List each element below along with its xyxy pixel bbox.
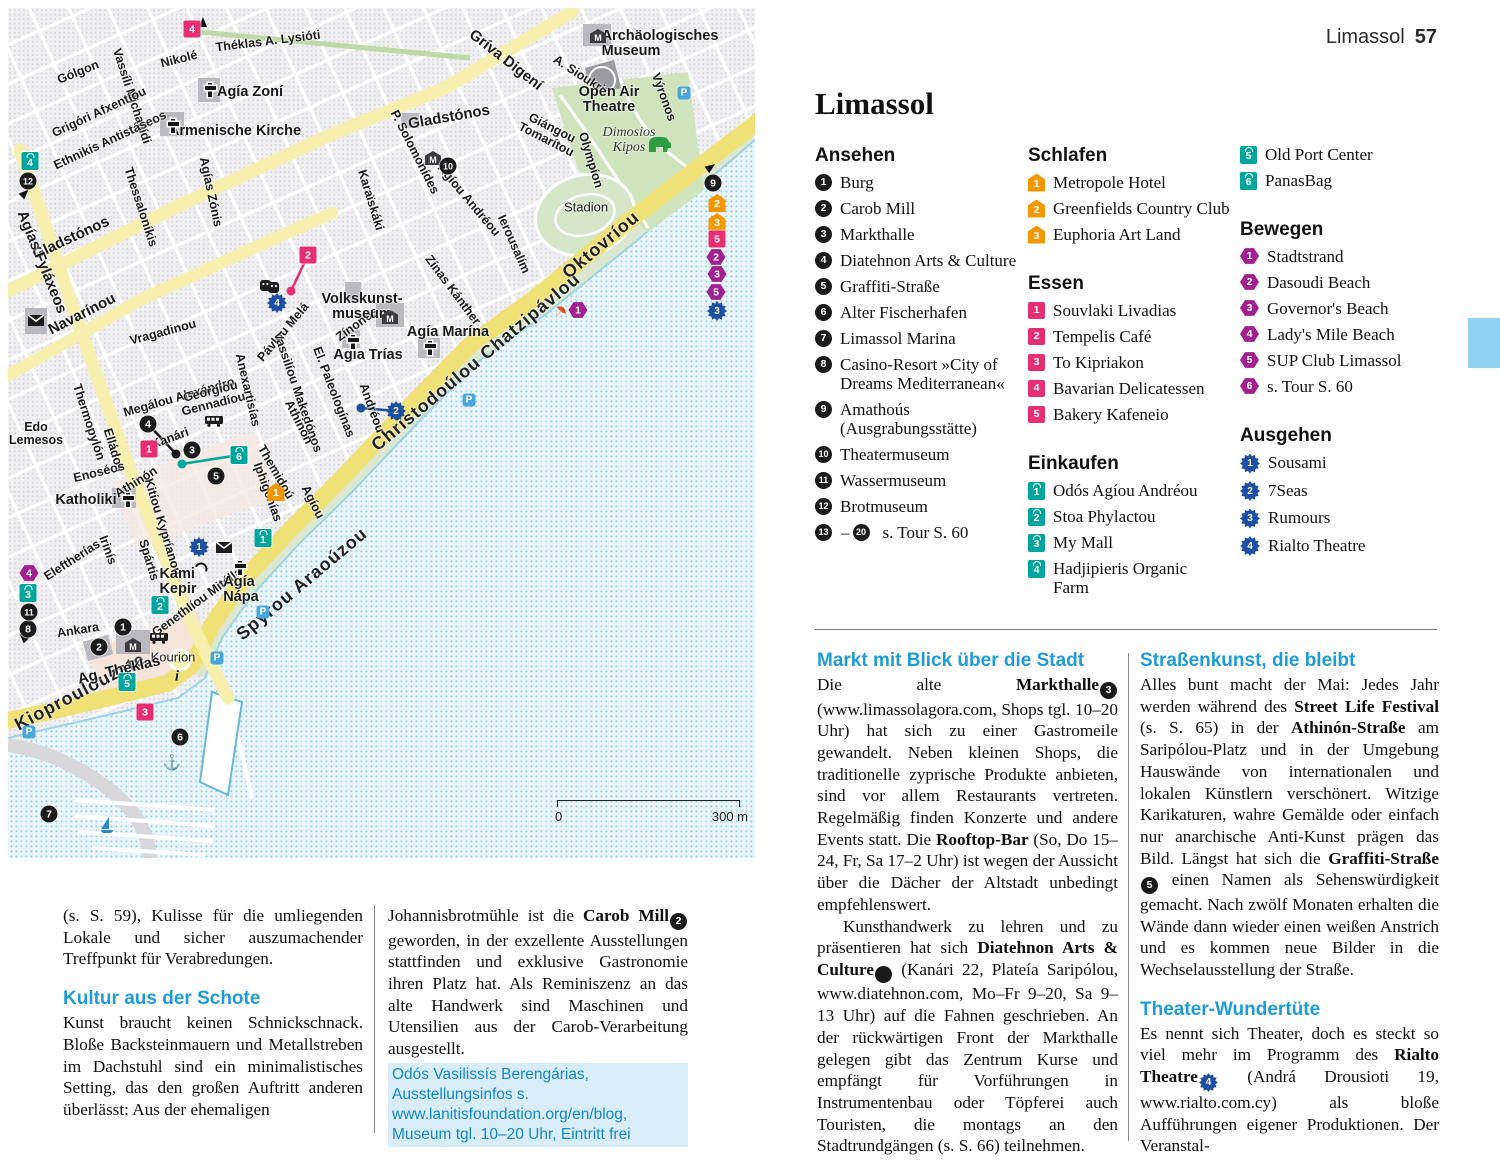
page-title: Limassol [815,86,934,122]
directory-item: 5Bakery Kafeneio [1028,405,1240,424]
directory-item: 4Hadjipieris Organic Farm [1028,559,1240,597]
sight-marker-8: 8 [815,356,832,373]
directory-item: 2Stoa Phylactou [1028,507,1240,526]
article-heading: Theater-Wundertüte [1140,999,1439,1021]
shop-marker-1: 1 [1028,482,1045,500]
shop-marker-6: 6 [1240,172,1257,190]
section-heading-ansehen: Ansehen [815,145,1028,167]
food-marker-1: 1 [1028,302,1045,319]
directory-item: 2Carob Mill [815,199,1028,218]
sight-marker-13: 13 [815,524,832,541]
bold-keyword: Graffiti-Straße [1328,849,1439,868]
map-scale-bar: 0 300 m [557,800,740,807]
sight-marker-9: 9 [815,401,832,418]
scale-end-label: 300 m [712,809,748,824]
sight-marker-4: 4 [815,252,832,269]
directory-item: 13–20s. Tour S. 60 [815,523,1028,542]
directory-item: 3Rumours [1240,508,1437,529]
directory-item-label: Stoa Phylactou [1053,507,1155,526]
food-marker-3: 3 [1028,354,1045,371]
sight-marker-2: 2 [815,200,832,217]
directory-item: 6s. Tour S. 60 [1240,377,1437,396]
section-heading-ausgehen: Ausgehen [1240,425,1437,447]
directory-item-label: To Kipriakon [1053,353,1144,372]
page-header: Limassol57 [1326,26,1437,49]
sight-marker-3: 3 [1100,682,1117,699]
night-marker-2: 2 [1240,481,1260,501]
directory-item: 2Tempelis Café [1028,327,1240,346]
bold-keyword: Athinón-Straße [1291,718,1406,737]
sight-marker-2: 2 [670,913,687,930]
page-edge-tab [1468,318,1500,368]
directory-column-1: Ansehen1Burg2Carob Mill3Markthalle4Diate… [815,145,1028,604]
food-marker-4: 4 [1028,380,1045,397]
directory-item: 1Souvlaki Livadias [1028,301,1240,320]
directory-item: 1Metropole Hotel [1028,173,1240,192]
shop-marker-3: 3 [1028,534,1045,552]
directory-item-label: Odós Agíou Andréou [1053,481,1198,500]
directory-item-label: Lady's Mile Beach [1267,325,1395,344]
article-heading: Straßenkunst, die bleibt [1140,650,1439,672]
sight-marker-3: 3 [815,226,832,243]
directory-item: 2Greenfields Country Club [1028,199,1240,218]
directory-column-3: 5Old Port Center6PanasBagBewegen1Stadtst… [1240,145,1437,604]
directory-item-label: Governor's Beach [1267,299,1389,318]
article-column-3: Markt mit Blick über die StadtDie alte M… [817,650,1118,1157]
directory-item: 10Theatermuseum [815,445,1028,464]
article-heading: Markt mit Blick über die Stadt [817,650,1118,672]
guidebook-spread: GólgonVassíli MichailídiNikoléThéklas A.… [0,0,1500,1176]
shop-marker-5: 5 [1240,146,1257,164]
night-marker-1: 1 [1240,454,1260,474]
bold-keyword: Carob Mill [583,906,669,925]
hotel-marker-2: 2 [1028,200,1045,218]
hotel-marker-1: 1 [1028,174,1045,192]
move-marker-1: 1 [1240,248,1259,265]
bold-keyword: Street Life Festival [1294,697,1439,716]
directory-item: 7Limassol Marina [815,329,1028,348]
directory-item-label: SUP Club Limassol [1267,351,1401,370]
directory-item-label: Greenfields Country Club [1053,199,1230,218]
article-paragraph: Kunsthandwerk zu lehren und zu präsentie… [817,916,1118,1158]
range-dash: – [841,523,850,542]
bold-keyword: Rooftop-Bar [936,830,1029,849]
article-paragraph: Kunst braucht keinen Schnickschnack. Blo… [63,1012,363,1121]
food-marker-2: 2 [1028,328,1045,345]
shop-marker-4: 4 [1028,560,1045,578]
sight-marker-11: 11 [815,472,832,489]
directory-divider [815,629,1437,630]
directory-item-label: Dasoudi Beach [1267,273,1370,292]
directory-item-label: Diatehnon Arts & Culture [840,251,1016,270]
bold-keyword: Diatehnon Arts & Culture [817,938,1118,979]
map-directory: Ansehen1Burg2Carob Mill3Markthalle4Diate… [815,145,1439,604]
sight-marker-6: 6 [815,304,832,321]
directory-item: 5SUP Club Limassol [1240,351,1437,370]
article-paragraph: Die alte Markthalle3 (www.limassolagora.… [817,674,1118,916]
directory-item: 3To Kipriakon [1028,353,1240,372]
directory-item: 11Wassermuseum [815,471,1028,490]
directory-item-label: Hadjipieris Organic Farm [1053,559,1187,597]
directory-item: 1Burg [815,173,1028,192]
directory-item-label: Rialto Theatre [1268,536,1365,555]
directory-item-label: 7Seas [1268,481,1308,500]
food-marker-5: 5 [1028,406,1045,423]
bold-keyword: Rialto Theatre [1140,1045,1439,1086]
move-marker-2: 2 [1240,274,1259,291]
directory-item-label: PanasBag [1265,171,1332,190]
directory-item-label: Metropole Hotel [1053,173,1166,192]
section-heading-einkaufen: Einkaufen [1028,453,1240,475]
sight-marker-5: 5 [1141,877,1158,894]
article-heading: Kultur aus der Schote [63,988,363,1010]
directory-item-label: Old Port Center [1265,145,1373,164]
directory-item: 27Seas [1240,481,1437,502]
directory-item-label: Souvlaki Livadias [1053,301,1176,320]
night-marker-3: 3 [1240,509,1260,529]
directory-item: 1Odós Agíou Andréou [1028,481,1240,500]
sight-marker-20: 20 [853,524,870,541]
directory-item-label: Bavarian Delicatessen [1053,379,1205,398]
sight-marker-7: 7 [815,330,832,347]
directory-item-label: Alter Fischerhafen [840,303,967,322]
directory-item: 3My Mall [1028,533,1240,552]
directory-item: 6PanasBag [1240,171,1437,190]
shop-marker-2: 2 [1028,508,1045,526]
article-column-2: Johannisbrotmühle ist die Carob Mill2 ge… [388,905,688,1147]
map-base-graphic [0,0,755,866]
directory-item-label: Sousami [1268,453,1327,472]
directory-item-label: Markthalle [840,225,915,244]
directory-item-label: Carob Mill [840,199,915,218]
bold-keyword: Markthalle [1016,675,1099,694]
directory-item-label: Graffiti-Straße [840,277,940,296]
directory-item-label: Wassermuseum [840,471,946,490]
directory-item: 4Diatehnon Arts & Culture [815,251,1028,270]
column-divider-left [374,905,375,1133]
directory-item-label: Brotmuseum [840,497,928,516]
info-box: Odós Vasilissís Berengárias, Ausstellung… [388,1063,688,1147]
section-heading-bewegen: Bewegen [1240,219,1437,241]
page-number: 57 [1415,26,1437,48]
directory-item: 3Markthalle [815,225,1028,244]
sight-marker-10: 10 [815,446,832,463]
sight-marker-4: 4 [875,966,892,983]
directory-item: 4Bavarian Delicatessen [1028,379,1240,398]
article-column-4: Straßenkunst, die bleibtAlles bunt macht… [1140,650,1439,1157]
directory-item: 9Amathoús (Ausgrabungsstätte) [815,400,1028,438]
directory-item-label: Euphoria Art Land [1053,225,1180,244]
directory-item: 3Governor's Beach [1240,299,1437,318]
night-marker-4: 4 [1199,1073,1218,1092]
directory-item-label: My Mall [1053,533,1113,552]
night-marker-4: 4 [1240,536,1260,556]
scale-start-label: 0 [555,809,562,824]
sight-marker-12: 12 [815,498,832,515]
section-heading-schlafen: Schlafen [1028,145,1240,167]
directory-column-2: Schlafen1Metropole Hotel2Greenfields Cou… [1028,145,1240,604]
directory-item: 6Alter Fischerhafen [815,303,1028,322]
directory-item-label: s. Tour S. 60 [883,523,969,542]
directory-item: 4Rialto Theatre [1240,536,1437,557]
article-paragraph: (s. S. 59), Kulisse für die umliegenden … [63,905,363,970]
directory-item-label: Amathoús (Ausgrabungsstätte) [840,400,977,438]
directory-item: 1Sousami [1240,453,1437,474]
directory-item-label: Rumours [1268,508,1330,527]
directory-item: 1Stadtstrand [1240,247,1437,266]
scale-bar-line [557,800,740,807]
sight-marker-1: 1 [815,174,832,191]
directory-item-label: Casino-Resort »City of Dreams Mediterran… [840,355,1005,393]
directory-item: 2Dasoudi Beach [1240,273,1437,292]
article-paragraph: Es nennt sich Theater, doch es steckt so… [1140,1023,1439,1158]
directory-item-label: s. Tour S. 60 [1267,377,1353,396]
directory-item-label: Stadtstrand [1267,247,1344,266]
directory-item-label: Bakery Kafeneio [1053,405,1169,424]
directory-item-label: Tempelis Café [1053,327,1151,346]
move-marker-3: 3 [1240,300,1259,317]
directory-item: 8Casino-Resort »City of Dreams Mediterra… [815,355,1028,393]
directory-item-label: Theatermuseum [840,445,950,464]
sight-marker-5: 5 [815,278,832,295]
directory-item-label: Limassol Marina [840,329,956,348]
page-header-title: Limassol [1326,26,1405,48]
section-heading-essen: Essen [1028,273,1240,295]
article-paragraph: Alles bunt macht der Mai: Jedes Jahr wer… [1140,674,1439,981]
directory-item: 3Euphoria Art Land [1028,225,1240,244]
column-divider-right [1128,653,1129,1141]
directory-item: 5Graffiti-Straße [815,277,1028,296]
directory-item: 12Brotmuseum [815,497,1028,516]
directory-item: 4Lady's Mile Beach [1240,325,1437,344]
directory-item: 5Old Port Center [1240,145,1437,164]
move-marker-6: 6 [1240,378,1259,395]
hotel-marker-3: 3 [1028,226,1045,244]
move-marker-5: 5 [1240,352,1259,369]
move-marker-4: 4 [1240,326,1259,343]
city-map: GólgonVassíli MichailídiNikoléThéklas A.… [0,0,755,866]
article-paragraph: Johannisbrotmühle ist die Carob Mill2 ge… [388,905,688,1060]
article-column-1: (s. S. 59), Kulisse für die umliegenden … [63,905,363,1121]
directory-item-label: Burg [840,173,874,192]
